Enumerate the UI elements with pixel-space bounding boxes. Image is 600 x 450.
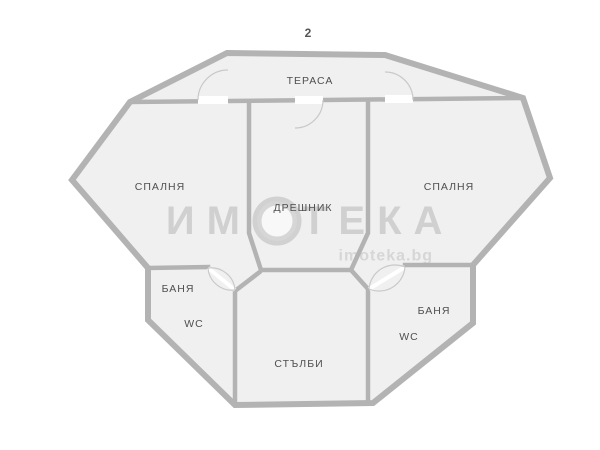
- room-label-bedroom-right: СПАЛНЯ: [424, 181, 474, 193]
- room-label-terrace: ТЕРАСА: [287, 75, 334, 87]
- room-label-closet: ДРЕШНИК: [274, 202, 333, 214]
- watermark-brand-start: ИМ: [166, 199, 252, 243]
- room-label-bedroom-left: СПАЛНЯ: [135, 181, 185, 193]
- terrace-door-middle-gap: [295, 96, 323, 104]
- floor-number: 2: [305, 26, 312, 40]
- room-label-bath-right: БАНЯ: [418, 305, 451, 317]
- floorplan-page: 2 ИМ ТЕКА imoteka.bg ТЕР: [0, 0, 600, 450]
- terrace-door-right-gap: [385, 95, 413, 103]
- room-label-bath-left: БАНЯ: [162, 283, 195, 295]
- terrace-door-left-gap: [198, 96, 228, 104]
- floorplan: 2 ИМ ТЕКА imoteka.bg ТЕР: [0, 0, 600, 450]
- room-label-wc-right: WC: [399, 331, 419, 343]
- room-label-wc-left: WC: [184, 318, 204, 330]
- bath-left-wall: [148, 267, 208, 268]
- room-label-stairs: СТЪЛБИ: [274, 358, 323, 370]
